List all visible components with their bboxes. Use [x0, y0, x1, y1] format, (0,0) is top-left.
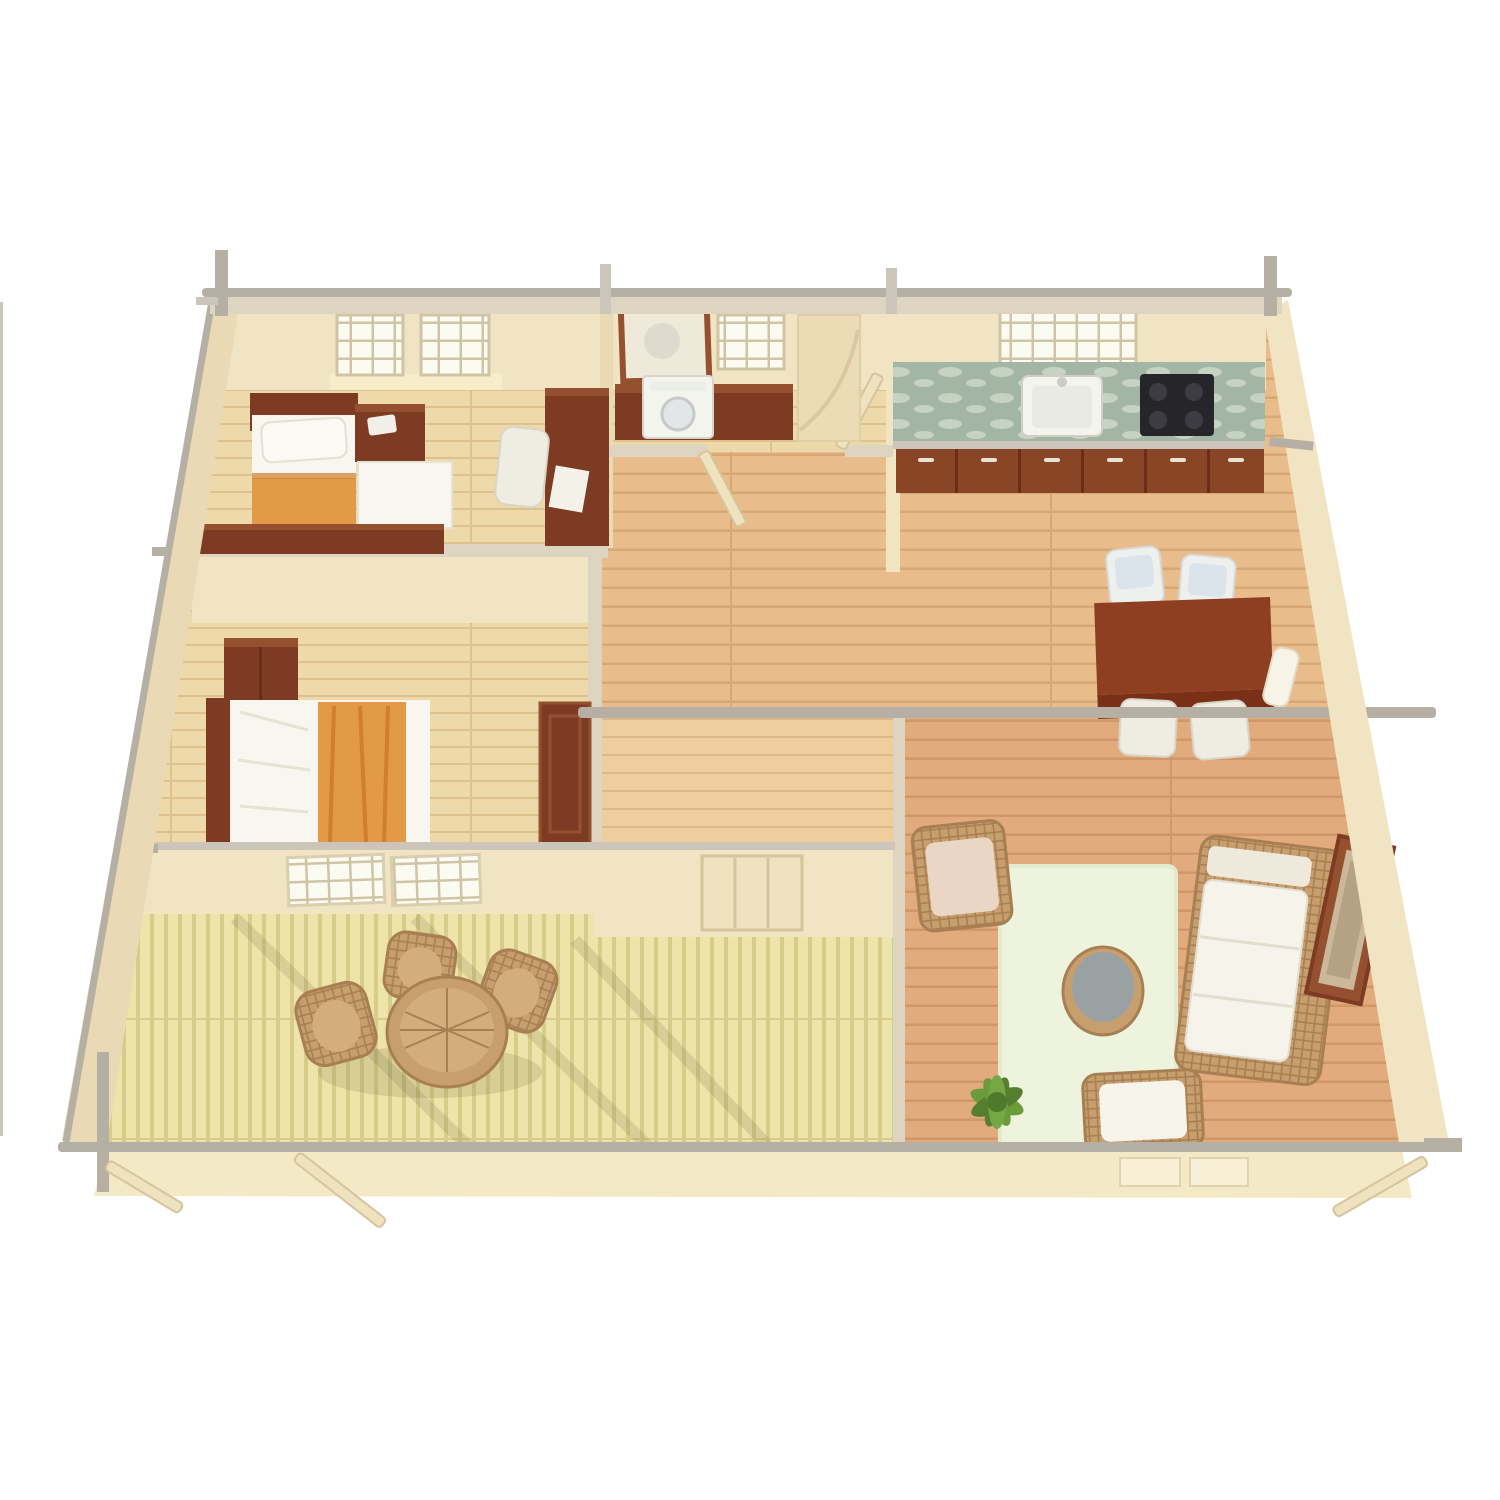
plant-center [987, 1092, 1007, 1112]
mirror-reflection [644, 323, 680, 359]
floor-mudroom [594, 718, 893, 852]
dining-table-group [1094, 597, 1274, 719]
bed-edge-sheet [406, 704, 430, 846]
cooktop [1140, 374, 1214, 436]
wall-utility-front [608, 445, 708, 457]
floor-plan-render [0, 0, 1500, 1500]
post-stub [196, 297, 218, 305]
front-window [287, 854, 385, 905]
cabinet-line [1081, 449, 1084, 493]
cabinet-line [1144, 449, 1147, 493]
terrace-table [387, 977, 507, 1087]
wall-living-west [893, 718, 905, 1148]
bedroom-door [540, 703, 590, 845]
lounge-cushion [925, 836, 1000, 917]
guest-mattress [358, 462, 452, 528]
mudroom-door [702, 856, 802, 930]
desk-edge [545, 388, 609, 396]
window [337, 315, 403, 375]
bed-blanket [252, 478, 356, 530]
wicker-armchair [1082, 1069, 1204, 1153]
bench-edge [196, 524, 444, 530]
back-top-beam [202, 288, 1292, 297]
desk [545, 388, 609, 546]
kitchen [893, 362, 1265, 493]
handle [1228, 458, 1244, 462]
sink-bowl [1032, 386, 1092, 428]
chair-cushion [1114, 554, 1155, 590]
front-beam [58, 1142, 1460, 1152]
handle [918, 458, 934, 462]
cabinet-line [1018, 449, 1021, 493]
lounge-chair [911, 819, 1013, 932]
corner-post [215, 250, 228, 316]
burner [1149, 383, 1167, 401]
dining-table-top [1094, 597, 1273, 695]
log-end [1424, 1138, 1462, 1152]
sofa-seat-cushions [1184, 879, 1308, 1062]
coffee-table-top [1072, 952, 1134, 1022]
floor-plan-canvas [0, 0, 1500, 1500]
corner-post [1264, 256, 1277, 316]
back-wall-top [210, 296, 1282, 314]
cross-beam [578, 707, 1436, 718]
washer-door [662, 398, 694, 430]
handle [1044, 458, 1060, 462]
bedroom-front-back-wall-face [192, 557, 602, 623]
washer-panel [650, 382, 706, 391]
burner [1185, 383, 1203, 401]
handle [1170, 458, 1186, 462]
fascia-window [1120, 1158, 1180, 1186]
window [421, 315, 489, 375]
chest-top [355, 404, 425, 412]
desk-papers [549, 465, 590, 512]
wardrobe-top [224, 638, 298, 647]
cabinet-line [1207, 449, 1210, 493]
burner [1185, 411, 1203, 429]
wall-utility-front [845, 445, 893, 457]
wall-cap-beam [146, 842, 598, 850]
bed-pillow [261, 417, 348, 463]
armchair-cushion [1099, 1080, 1188, 1142]
window [718, 315, 784, 369]
post [886, 268, 897, 314]
bedroom-back [196, 388, 609, 554]
handle [981, 458, 997, 462]
post [600, 264, 611, 314]
faucet [1057, 377, 1067, 387]
handle [1107, 458, 1123, 462]
blanket-fold [252, 473, 356, 479]
cabinet-line [955, 449, 958, 493]
burner [1149, 411, 1167, 429]
desk-chair [494, 426, 550, 509]
counter-edge [893, 441, 1265, 449]
front-window [391, 854, 481, 905]
nightstand-chest [355, 404, 425, 462]
fascia-window [1190, 1158, 1248, 1186]
double-bed-headboard [206, 698, 232, 848]
chair-cushion [1187, 562, 1228, 597]
wall-cap-beam [592, 842, 895, 850]
